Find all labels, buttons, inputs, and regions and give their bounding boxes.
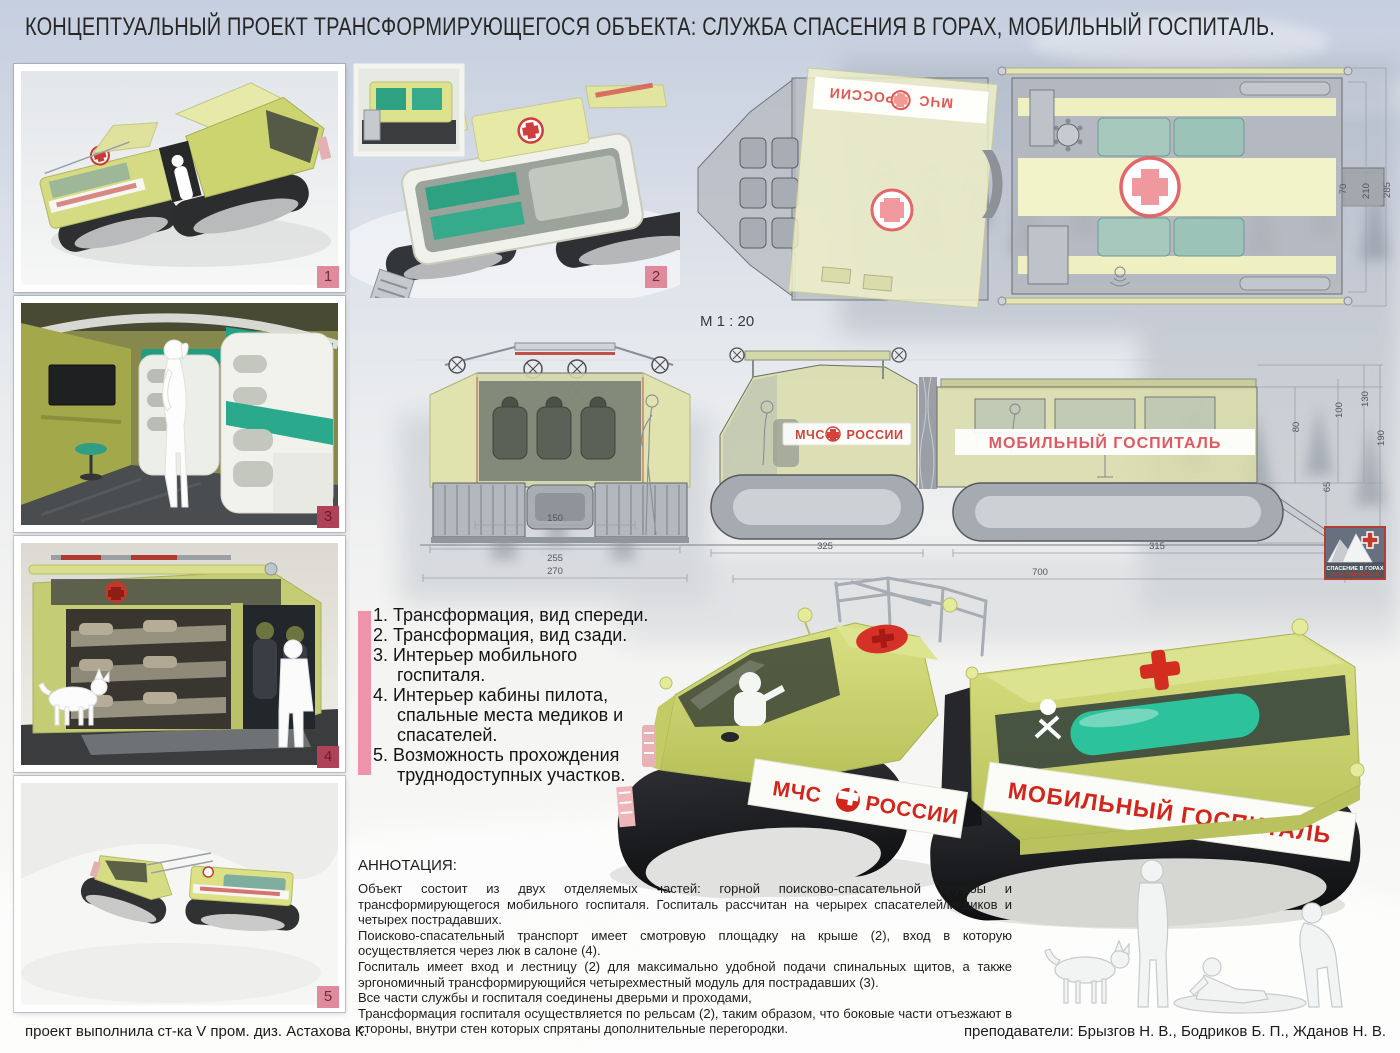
plan-dim-210: 210 <box>1361 183 1372 199</box>
figure-badge-4: 4 <box>317 746 339 768</box>
red-cross-icon <box>105 581 127 603</box>
legend-item: 4. Интерьер кабины пилота, спальные мест… <box>373 685 669 745</box>
legend-accent-bar <box>358 611 371 775</box>
side-dim-315: 315 <box>1149 541 1165 552</box>
annotation-paragraph: Поисково-спасательный транспорт имеет см… <box>358 928 1012 959</box>
footer-credit-teachers: преподаватели: Брызгов Н. В., Бодриков Б… <box>964 1023 1386 1040</box>
figure-5-terrain-crossing <box>14 776 345 1012</box>
side-dim-80: 80 <box>1291 422 1302 433</box>
plan-view-drawing: МЧС РОССИИ <box>680 60 1395 340</box>
plan-dim-70: 70 <box>1338 184 1349 195</box>
side-dim-325: 325 <box>817 541 833 552</box>
legend-item: 2. Трансформация, вид сзади. <box>373 625 669 645</box>
figure-1-scene <box>21 71 338 285</box>
red-cross-icon <box>826 427 840 441</box>
side-dim-65: 65 <box>1322 482 1333 493</box>
side-elevation: МЧС РОССИИ МОБИЛЬНЫЙ ГОСПИТАЛЬ <box>711 348 1387 583</box>
legend-text: Трансформация, вид сзади. <box>393 625 627 645</box>
cabin-seats-front <box>493 397 615 459</box>
figure-badge-1: 1 <box>317 266 339 288</box>
side-dim-100: 100 <box>1334 402 1345 418</box>
legend-text: Интерьер кабины пилота, спальные места м… <box>393 685 623 745</box>
figure-3-scene <box>21 303 338 525</box>
logo-text-en: MOUNTAIN RESCUE <box>1331 572 1380 578</box>
figure-2-scene <box>350 58 680 298</box>
side-brand-hospital: МОБИЛЬНЫЙ ГОСПИТАЛЬ <box>989 433 1222 452</box>
legend-text: Возможность прохождения труднодоступных … <box>393 745 625 785</box>
poster-canvas: КОНЦЕПТУАЛЬНЫЙ ПРОЕКТ ТРАНСФОРМИРУЮЩЕГОС… <box>0 0 1400 1053</box>
hospital-module-plan <box>998 67 1384 305</box>
mountain-rescue-logo: СПАСЕНИЕ В ГОРАХ MOUNTAIN RESCUE <box>1324 526 1386 580</box>
footer-credit-author: проект выполнила ст-ка V пром. диз. Аста… <box>25 1023 368 1040</box>
scale-label: М 1 : 20 <box>700 313 754 330</box>
red-cross-icon <box>891 90 911 110</box>
front-dim-150: 150 <box>547 513 563 524</box>
annotation-paragraph: Все части службы и госпиталя соединены д… <box>358 990 1012 1006</box>
plan-dim-285: 285 <box>1382 182 1393 198</box>
plan-brand-mchs: МЧС <box>918 93 954 112</box>
figure-3-hospital-interior <box>14 296 345 532</box>
front-elevation: 150 255 270 <box>423 343 690 582</box>
legend-number: 2. <box>373 625 388 645</box>
legend-number: 3. <box>373 645 388 665</box>
rescue-module-roof-panel: МЧС РОССИИ <box>789 68 998 308</box>
figure-1-transformation-front <box>14 64 345 292</box>
legend-number: 4. <box>373 685 388 705</box>
front-bunk-module <box>221 327 333 513</box>
legend-list: 1. Трансформация, вид спереди. 2. Трансф… <box>373 605 669 785</box>
figure-5-scene <box>21 783 338 1005</box>
annotation-paragraph: Трансформация госпиталя осуществляется п… <box>358 1006 1012 1037</box>
legend-item: 5. Возможность прохождения труднодоступн… <box>373 745 669 785</box>
annotation-paragraph: Госпиталь имеет вход и лестницу (2) для … <box>358 959 1012 990</box>
annotation-heading: АННОТАЦИЯ: <box>358 857 457 874</box>
figure-2-inset <box>356 66 462 154</box>
side-brand-rossii: РОССИИ <box>847 428 904 442</box>
legend-text: Трансформация, вид спереди. <box>393 605 648 625</box>
red-cross-icon <box>1121 158 1179 216</box>
legend-item: 1. Трансформация, вид спереди. <box>373 605 669 625</box>
annotation-paragraph: Объект состоит из двух отделяемых частей… <box>358 881 1012 928</box>
side-dim-190: 190 <box>1376 430 1387 446</box>
figure-badge-2: 2 <box>645 266 667 288</box>
red-cross-icon <box>872 190 912 230</box>
legend-item: 3. Интерьер мобильного госпиталя. <box>373 645 669 685</box>
side-brand-mchs: МЧС <box>795 428 825 442</box>
figure-2-transformation-rear <box>350 58 680 298</box>
legend-number: 5. <box>373 745 388 765</box>
side-dim-130: 130 <box>1360 391 1371 407</box>
front-dim-255: 255 <box>547 553 563 564</box>
figure-4-scene <box>21 543 338 765</box>
front-dim-270: 270 <box>547 566 563 577</box>
figure-4-cabin-interior <box>14 536 345 772</box>
bending-person-silhouette <box>1300 903 1342 1007</box>
legend-text: Интерьер мобильного госпиталя. <box>393 645 577 685</box>
sled-person-silhouette <box>1174 958 1306 1013</box>
annotation-body: Объект состоит из двух отделяемых частей… <box>358 881 1012 1037</box>
dog-silhouette <box>1045 941 1129 1003</box>
mountain-rescue-logo-art: СПАСЕНИЕ В ГОРАХ MOUNTAIN RESCUE <box>1326 528 1384 578</box>
tv-screen <box>49 365 115 405</box>
hospital-module: МОБИЛЬНЫЙ ГОСПИТАЛЬ <box>966 619 1364 861</box>
elevation-drawings: 150 255 270 МЧС РОССИИ <box>415 335 1390 590</box>
legend-number: 1. <box>373 605 388 625</box>
poster-title: КОНЦЕПТУАЛЬНЫЙ ПРОЕКТ ТРАНСФОРМИРУЮЩЕГОС… <box>25 13 1275 42</box>
figure-badge-5: 5 <box>317 986 339 1008</box>
figure-badge-3: 3 <box>317 506 339 528</box>
